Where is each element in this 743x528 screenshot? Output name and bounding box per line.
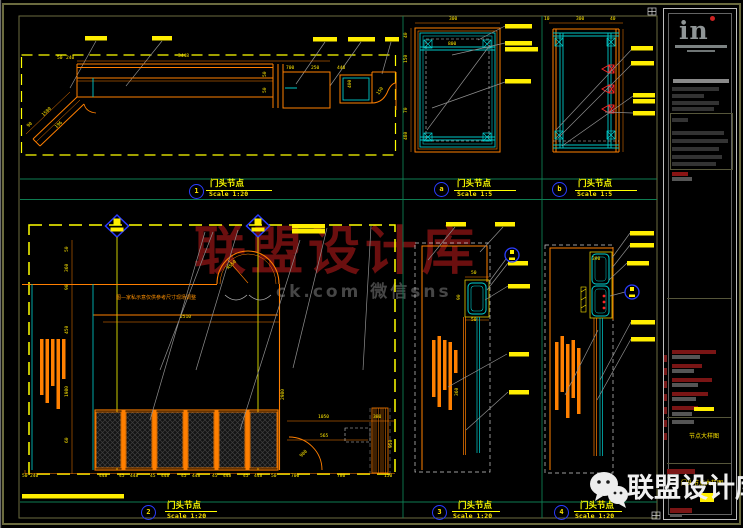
rev-row-bar xyxy=(672,355,700,359)
edge-tick xyxy=(664,433,667,440)
view-title: 门头节点 xyxy=(210,180,244,189)
dim-label: 50 xyxy=(264,71,269,77)
info-text-bar xyxy=(672,94,704,98)
edge-tick xyxy=(664,394,667,401)
dim-label: 50 xyxy=(471,319,477,324)
red-text-bar xyxy=(672,172,688,176)
logo-subtext-bar xyxy=(687,50,715,52)
dim-label: 700 xyxy=(291,475,299,480)
rev-row-bar xyxy=(672,412,692,416)
wall-hatch xyxy=(432,336,458,410)
dim-label: 40 xyxy=(610,18,616,23)
view-title: 门头节点 xyxy=(457,180,491,189)
gray-text-bar xyxy=(672,420,694,424)
info-text-bar xyxy=(672,107,714,111)
rev-row-bar xyxy=(672,397,696,401)
cad-linework xyxy=(0,0,743,528)
edge-tick xyxy=(664,368,667,375)
dim-label: 90 xyxy=(66,284,71,290)
view4-linework xyxy=(545,231,655,473)
wechat-icon xyxy=(589,471,629,509)
notes-text-bar xyxy=(672,147,719,151)
dim-label: 950 xyxy=(390,440,395,448)
view-title: 门头节点 xyxy=(578,180,612,189)
dim-label: 448 xyxy=(130,475,138,480)
dim-label: 50 xyxy=(22,475,28,480)
dim-label: 250 xyxy=(311,67,319,72)
info-text-bar xyxy=(672,87,719,91)
logo-subtext-bar xyxy=(675,45,727,48)
dim-label: 70 xyxy=(405,107,410,113)
view-scale: Scale 1:20 xyxy=(575,513,614,520)
divider xyxy=(667,298,731,299)
highlight-bar xyxy=(694,407,714,411)
furniture-note: 图—家私示意仅供参考尺寸现场调整 xyxy=(116,296,196,301)
dim-label: 2510 xyxy=(180,316,191,321)
dim-label: 448 xyxy=(161,475,169,480)
screen-panels xyxy=(95,410,278,470)
dim-label: 400 xyxy=(349,80,354,88)
view-a-linework xyxy=(411,23,538,152)
company-logo: in xyxy=(679,18,715,43)
dim-label: 40 xyxy=(405,32,410,38)
wall-hatch xyxy=(40,339,66,409)
view2-linework xyxy=(22,215,395,499)
view-scale: Scale 1:5 xyxy=(457,191,492,198)
view-scale: Scale 1:20 xyxy=(453,513,492,520)
grid-icon xyxy=(648,8,660,519)
notes-text-bar xyxy=(672,155,722,159)
view-scale: Scale 1:20 xyxy=(209,191,248,198)
dim-label: 300 xyxy=(576,18,584,23)
dim-label: 50 xyxy=(66,246,71,252)
dim-label: 240 xyxy=(30,475,38,480)
view3-linework xyxy=(415,222,530,472)
view-b-linework xyxy=(549,23,655,152)
rev-row-bar xyxy=(672,383,698,387)
dim-label: 440 xyxy=(337,67,345,72)
red-text-bar xyxy=(670,508,692,513)
dim-label: 60 xyxy=(66,437,71,443)
divider xyxy=(667,463,731,464)
view-number-badge: 1 xyxy=(189,184,204,199)
dim-label: 1980 xyxy=(66,386,71,397)
view-number-badge: b xyxy=(552,182,567,197)
dim-label: 380 xyxy=(373,416,381,421)
section-marker xyxy=(106,215,270,237)
info-text-bar xyxy=(673,79,729,83)
dim-label: 150 xyxy=(405,55,410,63)
notes-text-bar xyxy=(672,118,688,122)
dim-label: 360 xyxy=(456,388,461,396)
gray-text-bar xyxy=(670,514,682,517)
view1-linework xyxy=(22,36,400,155)
gray-text-bar xyxy=(672,177,692,181)
notes-text-bar xyxy=(672,162,716,166)
dim-label: 45 xyxy=(119,475,125,480)
logo-red-dot xyxy=(710,16,715,21)
dim-label: 780 xyxy=(337,475,345,480)
dim-label: 448 xyxy=(223,475,231,480)
dim-label: 45 xyxy=(181,475,187,480)
view-number-badge: a xyxy=(434,182,449,197)
dim-label: 45 xyxy=(243,475,249,480)
dim-label: 150 xyxy=(384,475,392,480)
dim-label: 390 xyxy=(592,258,600,263)
dim-label: 700 xyxy=(286,67,294,72)
dim-label: 448 xyxy=(99,475,107,480)
dim-label: 480 xyxy=(405,132,410,140)
dim-label: 300 xyxy=(449,18,457,23)
view-number-badge: 3 xyxy=(432,505,447,520)
dim-label: 448 xyxy=(192,475,200,480)
dim-label: 50 xyxy=(471,272,477,277)
dim-label: 2980 xyxy=(282,389,287,400)
dim-label: 50 xyxy=(271,475,277,480)
titleblock-mid-label: 节点大样图 xyxy=(689,434,719,440)
wall-hatch xyxy=(555,336,581,418)
edge-tick xyxy=(664,381,667,388)
rev-row-bar xyxy=(672,378,712,382)
dim-label: 45 xyxy=(212,475,218,480)
edge-tick xyxy=(664,355,667,362)
view-title: 门头节点 xyxy=(167,502,201,511)
dim-label: 800 xyxy=(448,43,456,48)
dim-label: 565 xyxy=(320,435,328,440)
view-scale: Scale 1:5 xyxy=(577,191,612,198)
dim-label: 45 xyxy=(150,475,156,480)
dim-label: 3448 xyxy=(178,55,189,60)
edge-tick xyxy=(664,407,667,414)
dim-label: 10 xyxy=(544,18,550,23)
watermark-bottom-text: 联盟设计库 xyxy=(627,475,743,502)
dim-label: 50 xyxy=(264,87,269,93)
dim-label: 90 xyxy=(458,294,463,300)
view-scale: Scale 1:20 xyxy=(167,513,206,520)
title-block: in 节点大样图 门头节点大样图 xyxy=(663,8,737,520)
divider xyxy=(667,417,731,418)
rev-row-bar xyxy=(672,369,694,373)
dim-label: 240 xyxy=(66,57,74,62)
dim-label: 50 xyxy=(57,57,63,62)
dim-label: 450 xyxy=(66,326,71,334)
info-text-bar xyxy=(672,101,719,105)
view-title: 门头节点 xyxy=(458,502,492,511)
view-number-badge: 4 xyxy=(554,505,569,520)
rev-row-bar xyxy=(672,350,716,354)
cad-sheet: 联盟设计库 ck.com 微信sns xyxy=(0,0,743,528)
view-number-badge: 2 xyxy=(141,505,156,520)
rev-row-bar xyxy=(672,392,708,396)
dim-label: 448 xyxy=(254,475,262,480)
edge-tick xyxy=(664,420,667,427)
rev-row-bar xyxy=(672,364,702,368)
notes-text-bar xyxy=(672,139,728,143)
dim-label: 360 xyxy=(66,264,71,272)
notes-text-bar xyxy=(672,131,724,135)
dim-label: 1050 xyxy=(318,416,329,421)
